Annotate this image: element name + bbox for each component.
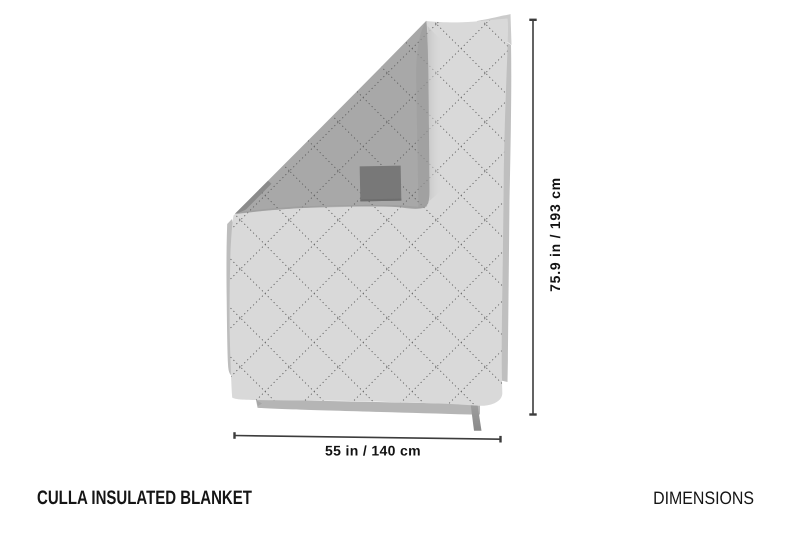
svg-text:75.9 in / 193 cm: 75.9 in / 193 cm xyxy=(547,177,563,292)
svg-text:55 in / 140 cm: 55 in / 140 cm xyxy=(325,443,421,459)
